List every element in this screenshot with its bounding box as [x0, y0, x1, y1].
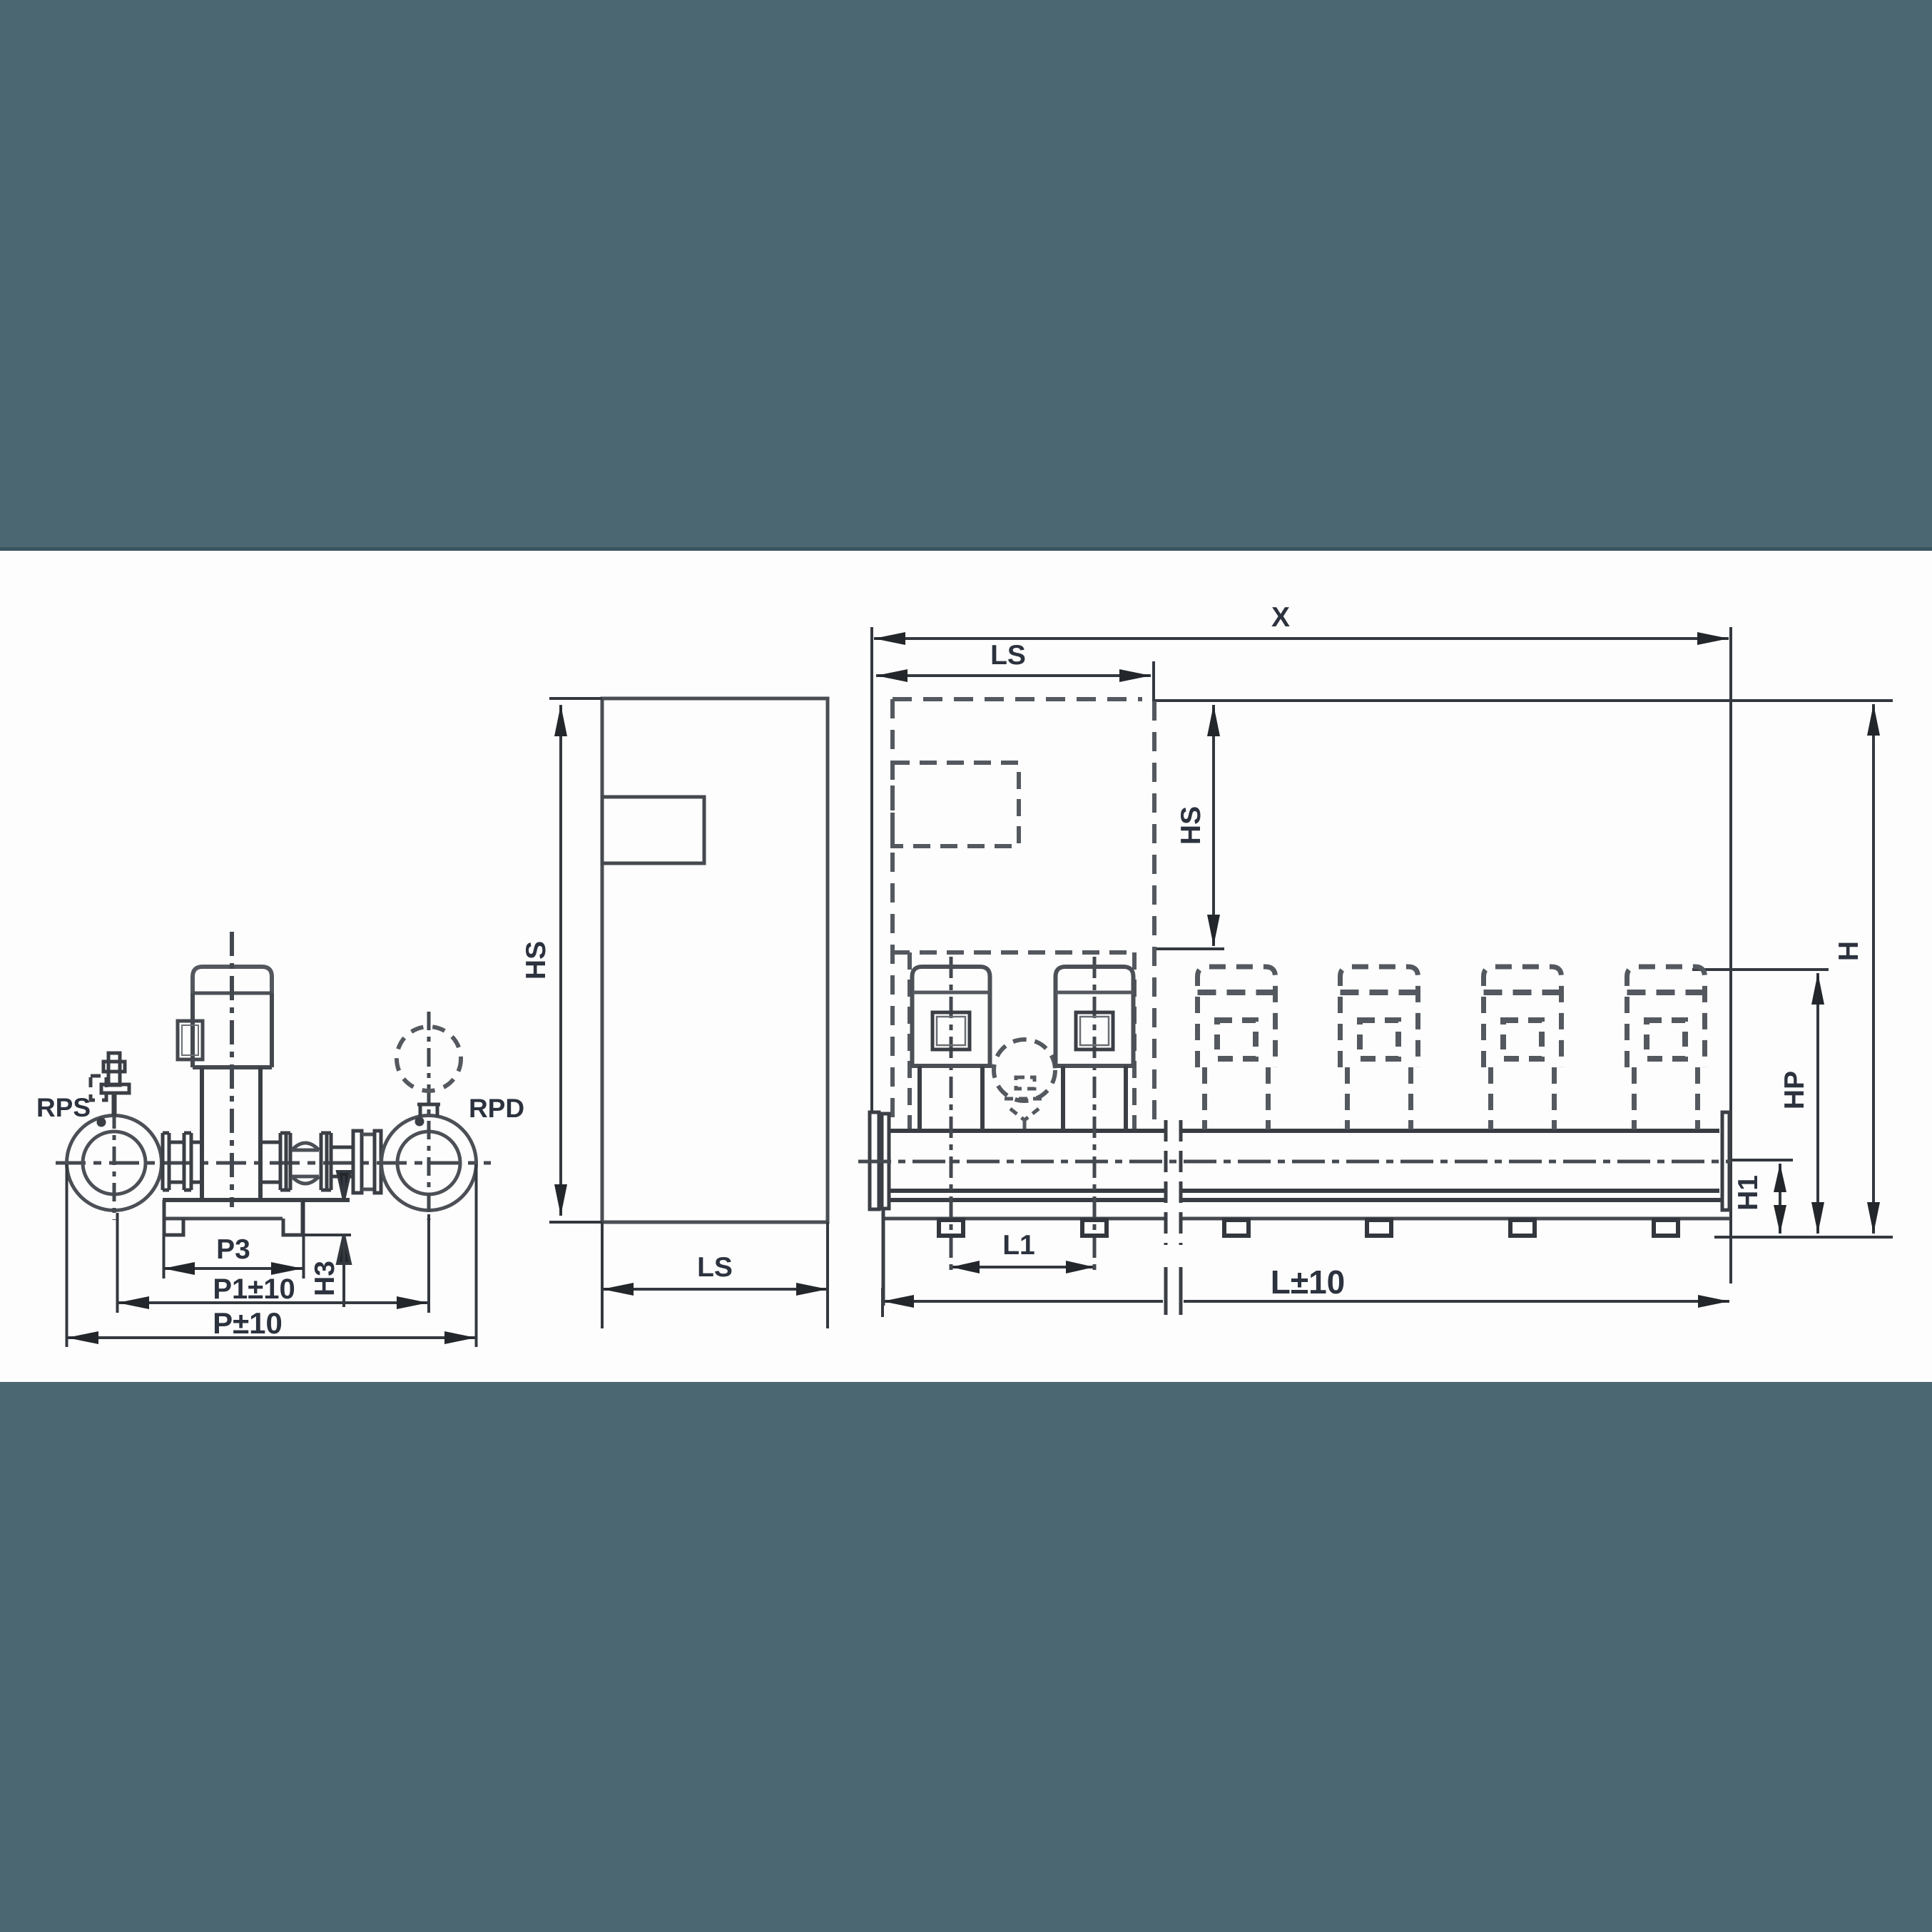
svg-text:HP: HP [1779, 1071, 1810, 1109]
svg-text:L±10: L±10 [1271, 1264, 1346, 1301]
svg-text:H1: H1 [1733, 1175, 1764, 1211]
svg-text:HS: HS [1176, 806, 1206, 845]
svg-text:L1: L1 [1002, 1230, 1035, 1261]
svg-text:RPD: RPD [469, 1094, 524, 1123]
svg-text:LS: LS [990, 640, 1026, 671]
svg-text:RPS: RPS [36, 1093, 91, 1122]
svg-text:HS: HS [521, 941, 551, 980]
svg-text:LS: LS [697, 1252, 733, 1283]
svg-text:H: H [1834, 941, 1864, 961]
svg-text:P1±10: P1±10 [213, 1273, 295, 1305]
svg-text:P±10: P±10 [213, 1306, 283, 1340]
svg-text:X: X [1271, 602, 1290, 633]
svg-text:H3: H3 [310, 1261, 340, 1296]
svg-text:P3: P3 [216, 1234, 250, 1265]
